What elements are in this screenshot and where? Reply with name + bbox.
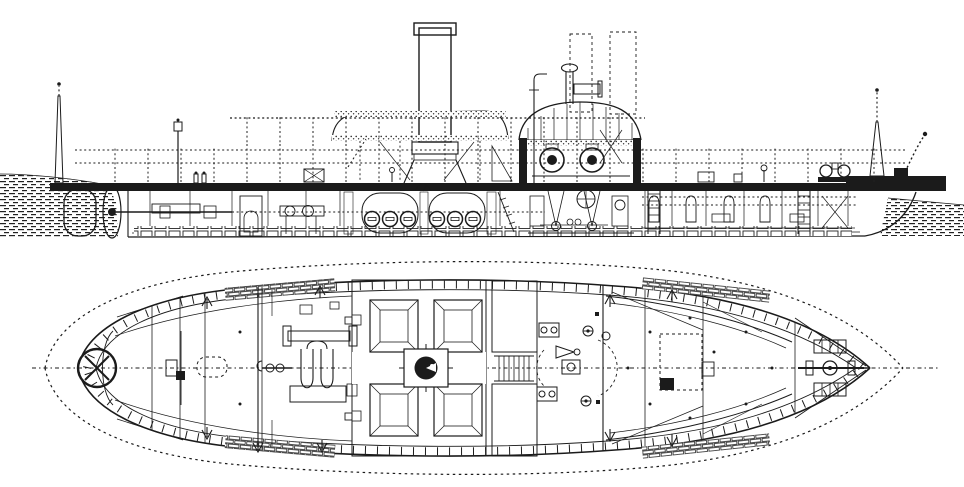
skylight-hatch-3 [370,384,418,436]
funnel-plan [399,344,453,392]
propeller-hub [108,208,116,216]
awning-frame-dotted-2 [610,32,636,114]
deck-plan-view [32,262,938,475]
windlass-plan [798,340,864,396]
voice-trumpet [556,346,574,358]
condenser [530,196,544,226]
skylight-hatch-2 [434,300,482,352]
ventilator-cowl [562,64,603,104]
pivot-mount [562,360,580,374]
cabin-table [712,214,730,222]
stern-flagstaff [55,96,63,183]
condenser-plan [290,386,346,402]
main-deck-line [50,183,946,191]
skylight-hatch-1 [370,300,418,352]
casemate-armor [345,280,537,456]
water-hatching-bow [880,198,964,236]
stanchions-tall-dotted [232,116,642,150]
double-bottom-frames [134,226,852,236]
air-pump [612,196,628,226]
aft-hatch-dashed [197,357,227,377]
funnel-cap [414,23,456,35]
breastwork-curve-top [606,296,792,342]
side-elevation-view [0,23,964,238]
engine-crosshead [288,331,350,341]
stanchions-dotted [85,148,895,183]
gun-deck-fittings [537,312,617,406]
furnace-doors [365,212,481,227]
fore-hatch-corner [660,378,674,390]
drawing-page [0,0,964,487]
hull-internal-structure [116,191,856,236]
skylight-hatch-4 [434,384,482,436]
armor-block-top [492,281,537,352]
jackstaff-base [894,168,908,177]
awning-rails [75,116,905,183]
gunboat-technical-drawing [0,0,964,487]
propeller-plan [78,349,116,387]
breastwork-curve-bottom [606,394,792,440]
engine-plan [257,290,357,446]
